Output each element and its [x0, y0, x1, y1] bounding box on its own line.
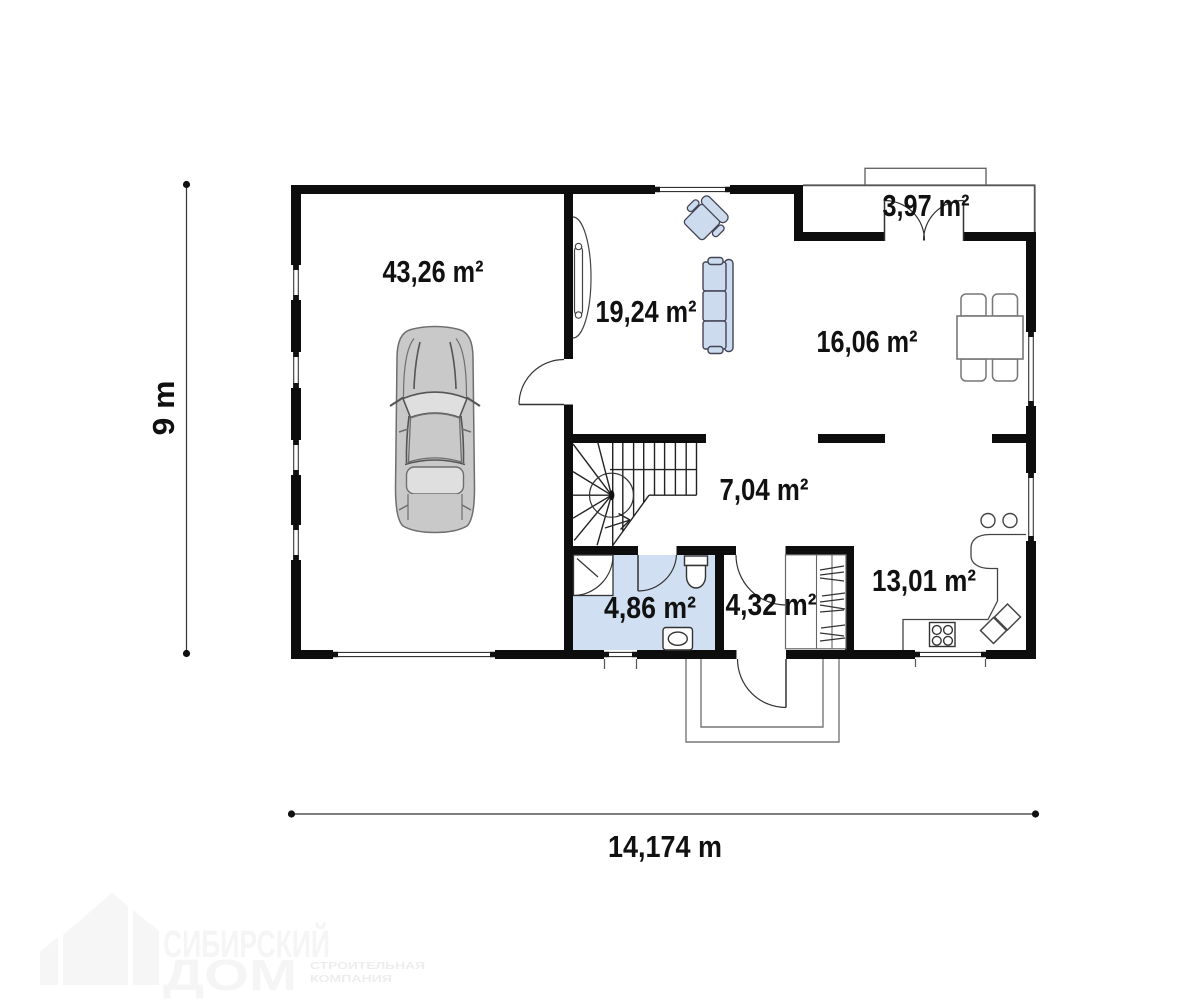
svg-text:ДОМ: ДОМ [163, 951, 297, 1000]
svg-text:19,24 m²: 19,24 m² [596, 294, 697, 329]
svg-text:3,97 m²: 3,97 m² [883, 188, 970, 223]
svg-text:14,174 m: 14,174 m [608, 829, 722, 864]
svg-text:16,06 m²: 16,06 m² [817, 324, 918, 359]
svg-text:4,86 m²: 4,86 m² [604, 590, 696, 625]
svg-text:43,26 m²: 43,26 m² [383, 254, 484, 289]
svg-text:4,32 m²: 4,32 m² [726, 587, 817, 622]
svg-text:13,01 m²: 13,01 m² [872, 563, 976, 598]
svg-text:КОМПАНИЯ: КОМПАНИЯ [310, 973, 392, 985]
svg-text:СТРОИТЕЛЬНАЯ: СТРОИТЕЛЬНАЯ [310, 960, 425, 972]
svg-text:9 m: 9 m [146, 381, 181, 436]
svg-text:7,04 m²: 7,04 m² [720, 472, 809, 507]
